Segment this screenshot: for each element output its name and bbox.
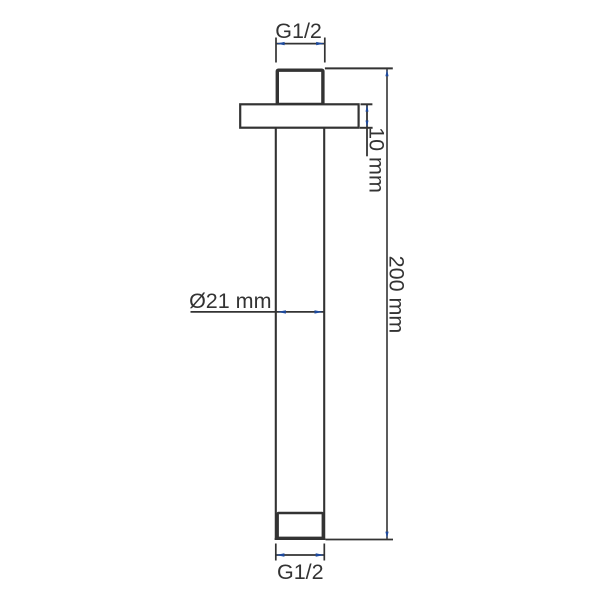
svg-text:200 mm: 200 mm — [385, 256, 409, 334]
svg-text:G1/2: G1/2 — [275, 19, 322, 43]
svg-text:10 mm: 10 mm — [365, 127, 389, 193]
svg-text:G1/2: G1/2 — [277, 560, 324, 584]
svg-text:Ø21 mm: Ø21 mm — [189, 289, 271, 313]
